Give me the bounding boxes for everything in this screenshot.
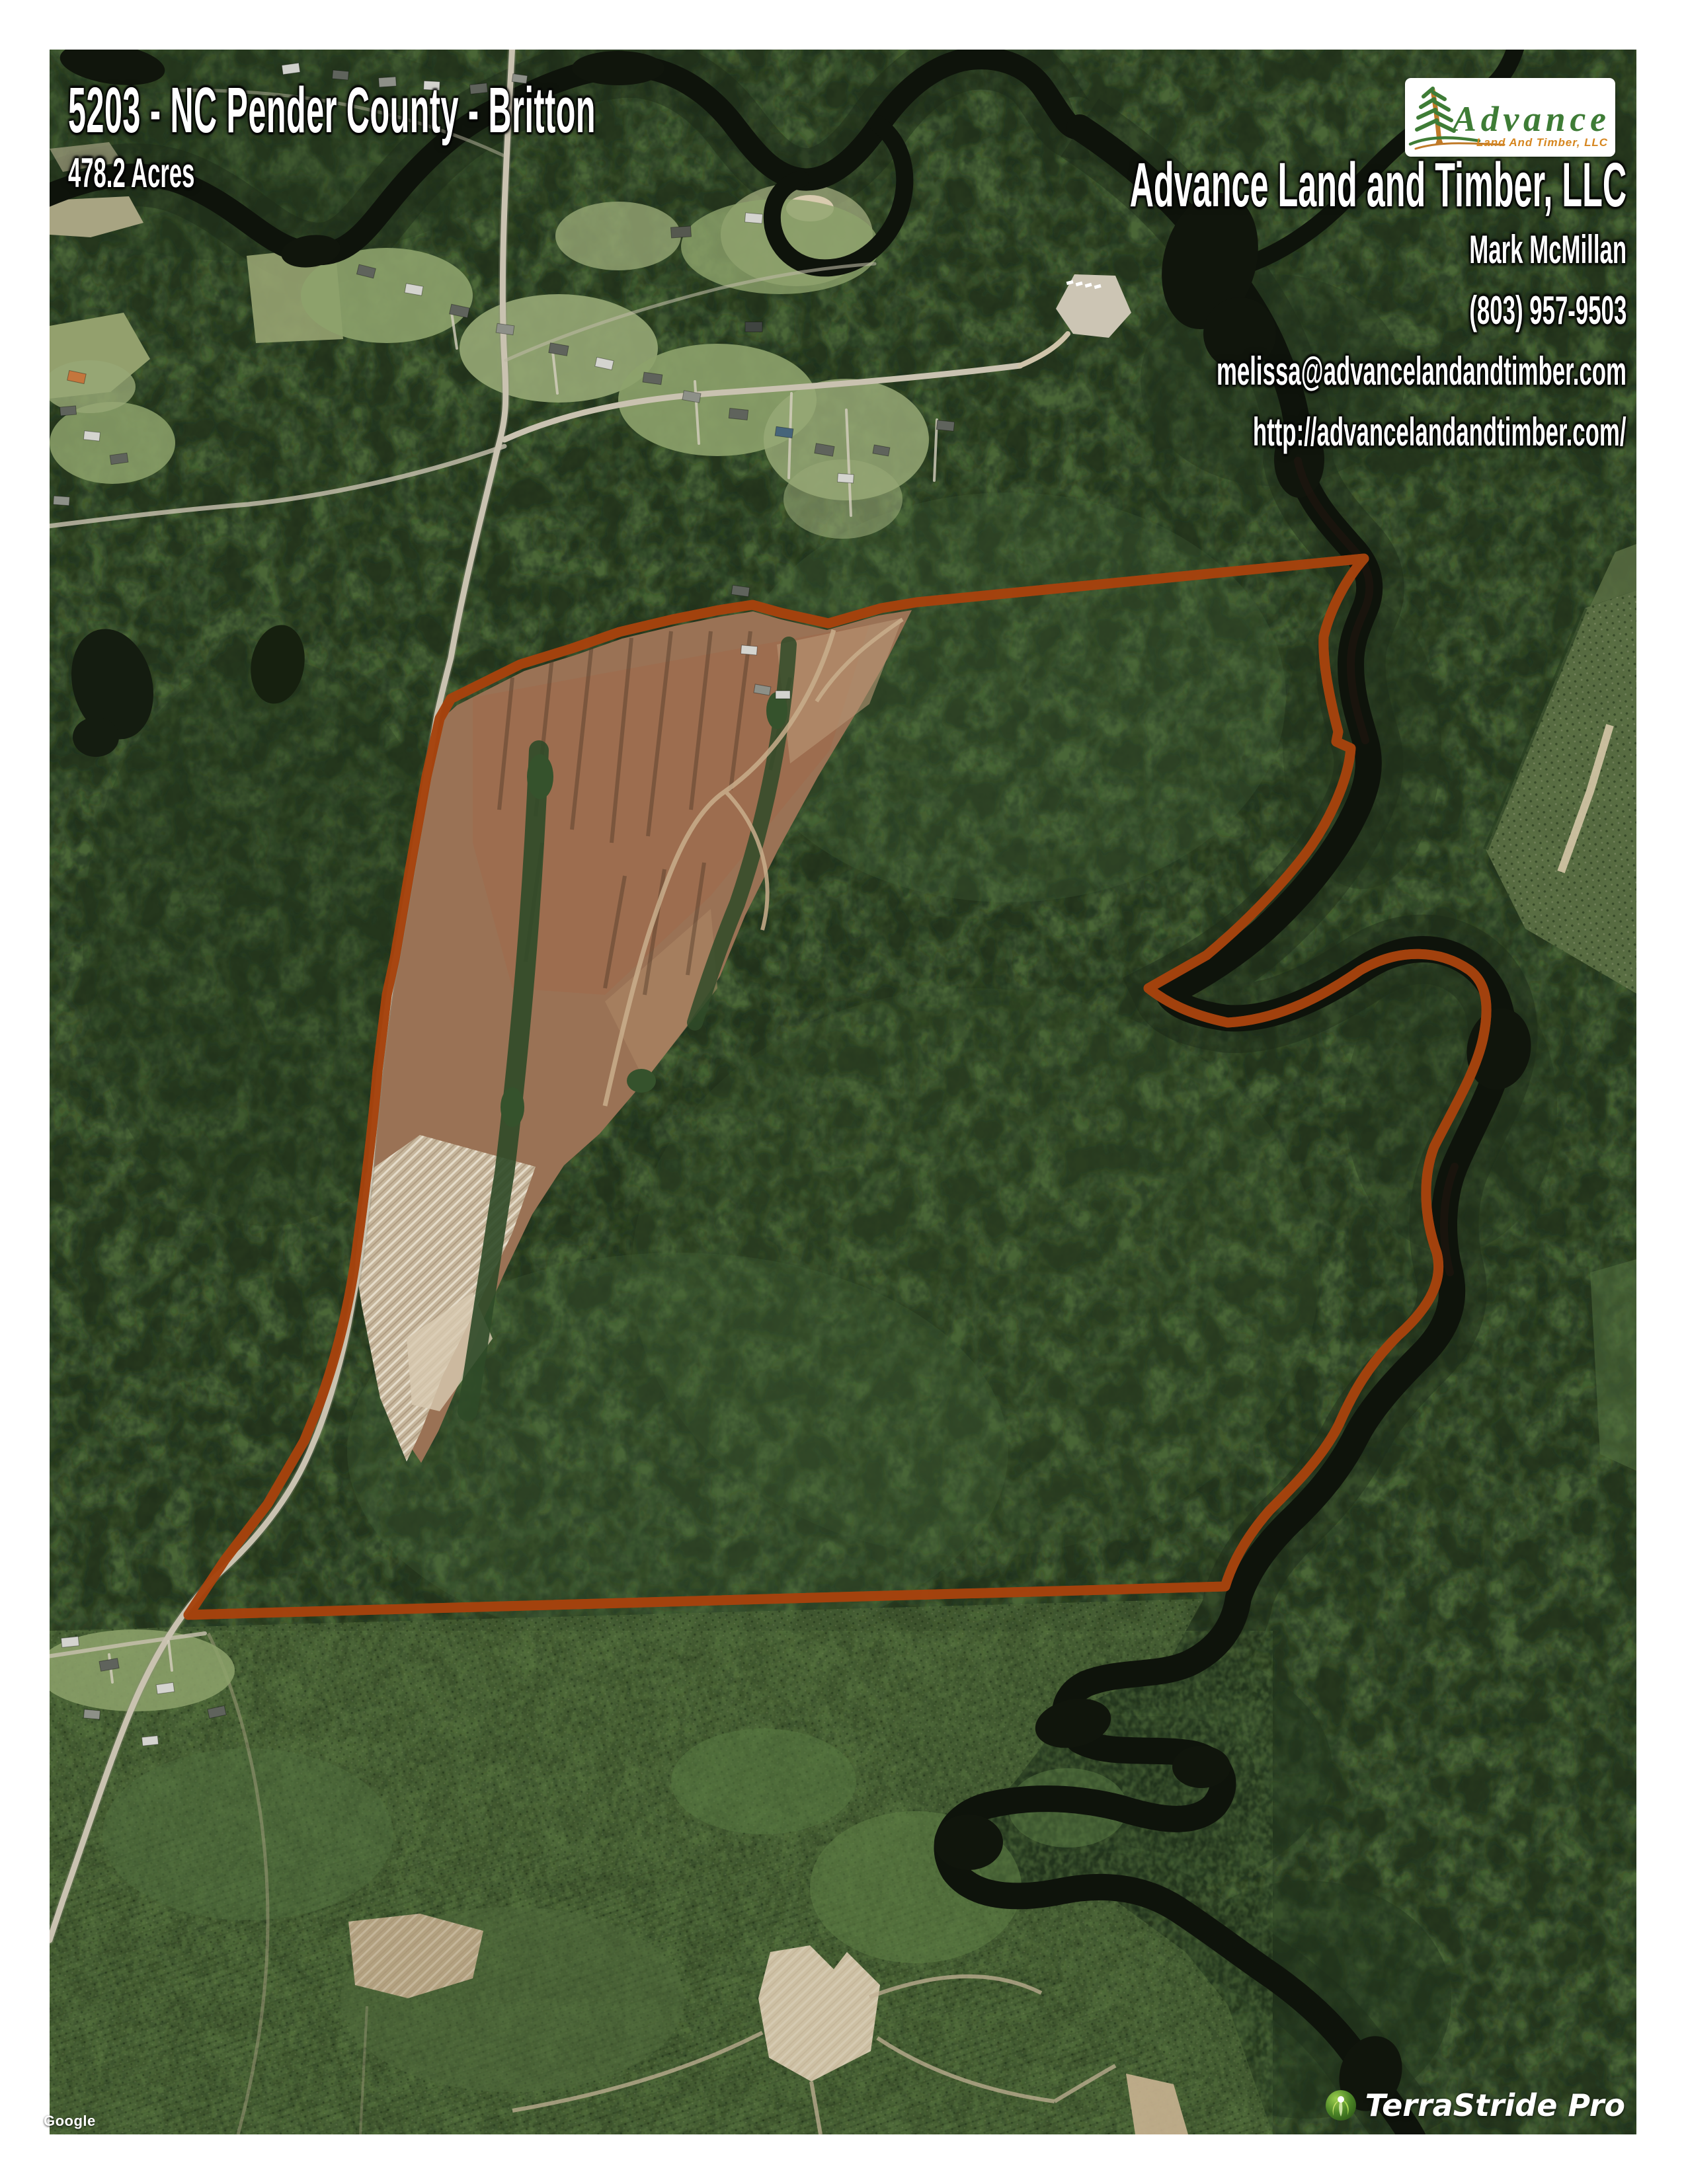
website-url: http://advancelandandtimber.com/: [1253, 402, 1626, 463]
google-credit: Google: [44, 2113, 96, 2130]
logo-brand-text: Advance: [1451, 99, 1606, 139]
terrastride-watermark: TerraStride Pro: [1324, 2087, 1625, 2123]
advance-logo-art: Advance Land And Timber, LLC: [1405, 78, 1615, 157]
contact-block: Advance Land and Timber, LLC Mark McMill…: [689, 151, 1626, 463]
acreage-label: 478.2 Acres: [68, 153, 194, 194]
email-address: melissa@advancelandandtimber.com: [1217, 341, 1626, 402]
terrastride-label: TerraStride Pro: [1365, 2087, 1625, 2123]
page-title: 5203 - NC Pender County - Britton: [68, 78, 596, 142]
company-name: Advance Land and Timber, LLC: [1129, 151, 1626, 219]
map-sheet: 5203 - NC Pender County - Britton 478.2 …: [0, 0, 1686, 2184]
agent-name: Mark McMillan: [1469, 219, 1626, 280]
terrastride-icon: [1324, 2089, 1357, 2122]
advance-logo: Advance Land And Timber, LLC: [1405, 78, 1615, 157]
logo-tagline-text: Land And Timber, LLC: [1476, 136, 1608, 149]
phone-number: (803) 957-9503: [1469, 280, 1626, 341]
